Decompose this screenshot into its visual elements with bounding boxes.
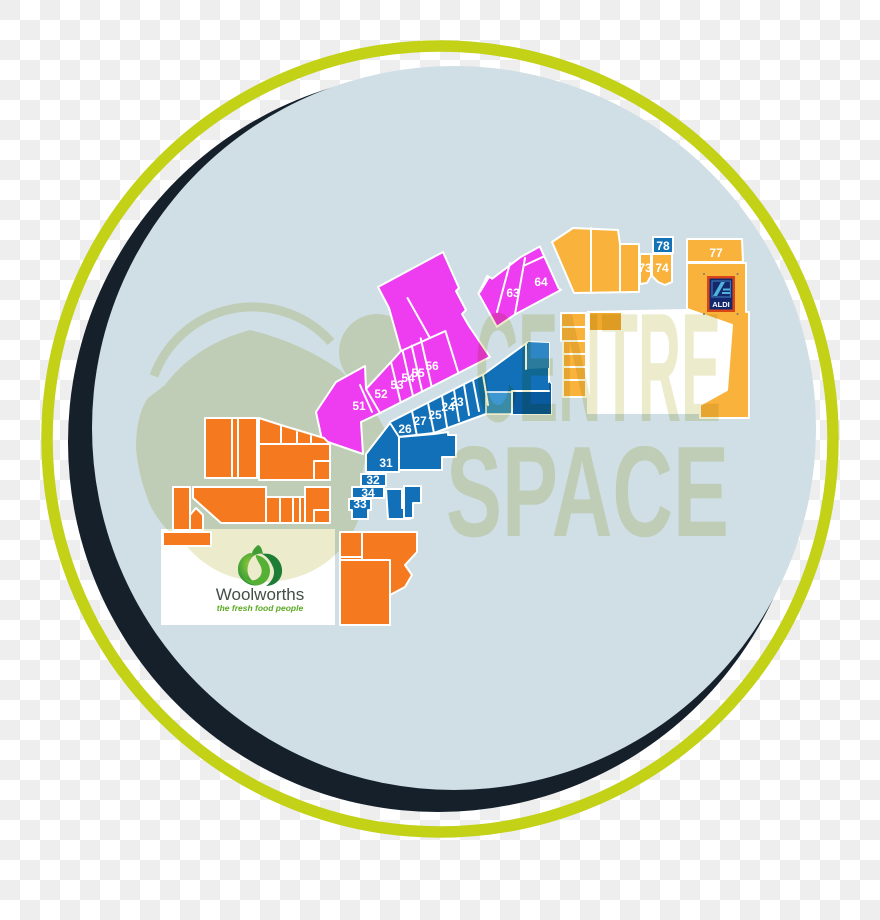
svg-text:27: 27	[413, 414, 427, 428]
svg-text:the fresh food people: the fresh food people	[217, 603, 304, 613]
svg-text:SPACE: SPACE	[446, 420, 729, 564]
svg-text:63: 63	[506, 286, 520, 300]
svg-text:26: 26	[398, 422, 412, 436]
svg-text:73: 73	[638, 261, 652, 275]
svg-text:33: 33	[353, 497, 367, 511]
svg-text:51: 51	[352, 399, 366, 413]
svg-text:74: 74	[655, 261, 669, 275]
svg-text:ALDI: ALDI	[712, 300, 730, 309]
svg-text:24: 24	[441, 400, 455, 414]
svg-text:77: 77	[709, 246, 723, 260]
svg-text:56: 56	[425, 359, 439, 373]
svg-text:52: 52	[374, 387, 388, 401]
svg-text:64: 64	[534, 275, 548, 289]
svg-text:25: 25	[428, 408, 442, 422]
svg-text:32: 32	[366, 473, 380, 487]
svg-text:78: 78	[656, 239, 670, 253]
svg-text:Woolworths: Woolworths	[216, 585, 305, 604]
svg-text:53: 53	[390, 378, 404, 392]
svg-text:31: 31	[379, 456, 393, 470]
